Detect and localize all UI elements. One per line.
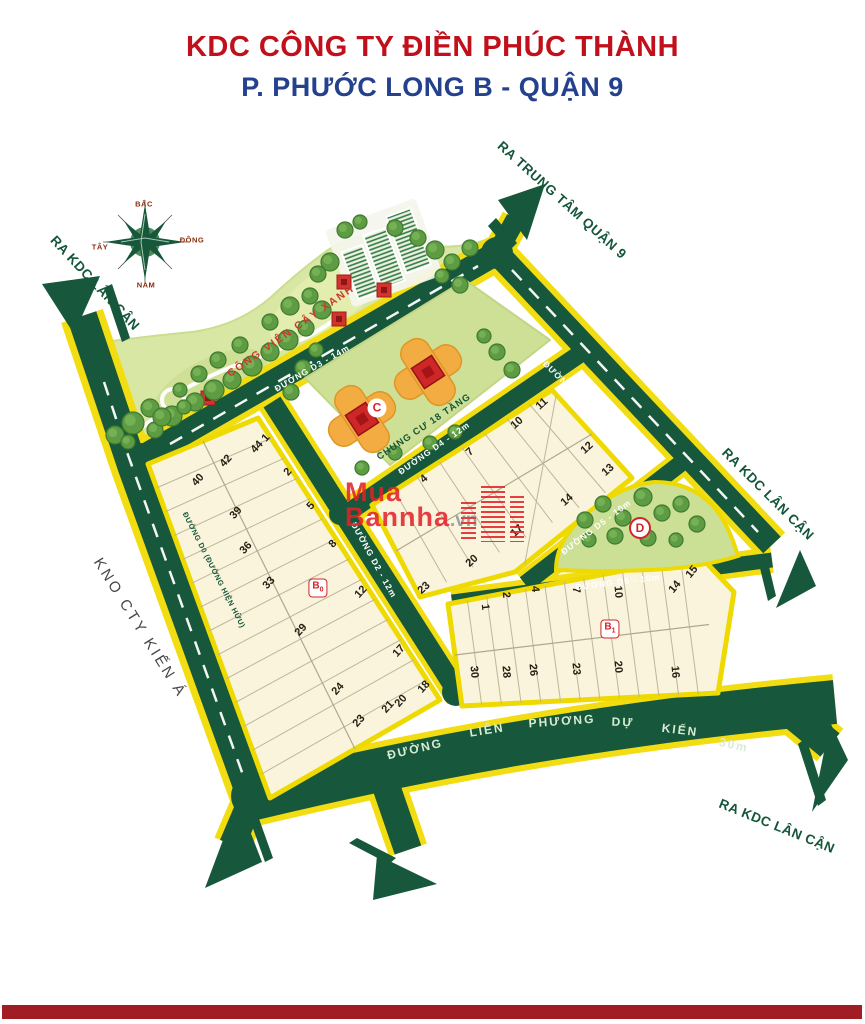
watermark-word2: Bannha [345,502,450,532]
plot-number: 2 [500,591,512,598]
watermark-building-icon [461,502,476,542]
watermark-building-icon [481,486,505,542]
watermark-building-icon [510,496,524,542]
footer-bar [2,1005,862,1019]
watermark: Mua Bannha.vn [345,480,535,544]
compass-west-label: TÂY [92,243,109,252]
map-title: KDC CÔNG TY ĐIỀN PHÚC THÀNH P. PHƯỚC LON… [0,26,865,107]
plot-number: 26 [526,663,539,676]
plot-number: 23 [569,662,582,675]
plot-number: 1 [479,603,491,610]
map-title-line2: P. PHƯỚC LONG B - QUẬN 9 [0,68,865,107]
compass-south-label: NAM [137,281,156,290]
road-label-lien-phuong-word: DỰ [611,715,634,730]
block-badge-b0: B0 [308,579,327,598]
plot-number: 30 [467,665,480,678]
block-badge-b1: B1 [600,620,619,639]
block-badge-c: C [368,399,387,418]
compass-rose [103,200,187,284]
plot-number: 16 [668,665,681,678]
compass-north-label: BẮC [135,200,153,209]
compass-east-label: ĐÔNG [180,236,205,245]
subdivision-plan-map: KDC CÔNG TY ĐIỀN PHÚC THÀNH P. PHƯỚC LON… [0,0,865,1024]
plot-number: 4 [529,585,541,592]
map-title-line1: KDC CÔNG TY ĐIỀN PHÚC THÀNH [0,26,865,68]
block-badge-d: D [629,517,651,539]
plot-number: 20 [611,660,624,673]
plot-number: 28 [499,665,512,678]
